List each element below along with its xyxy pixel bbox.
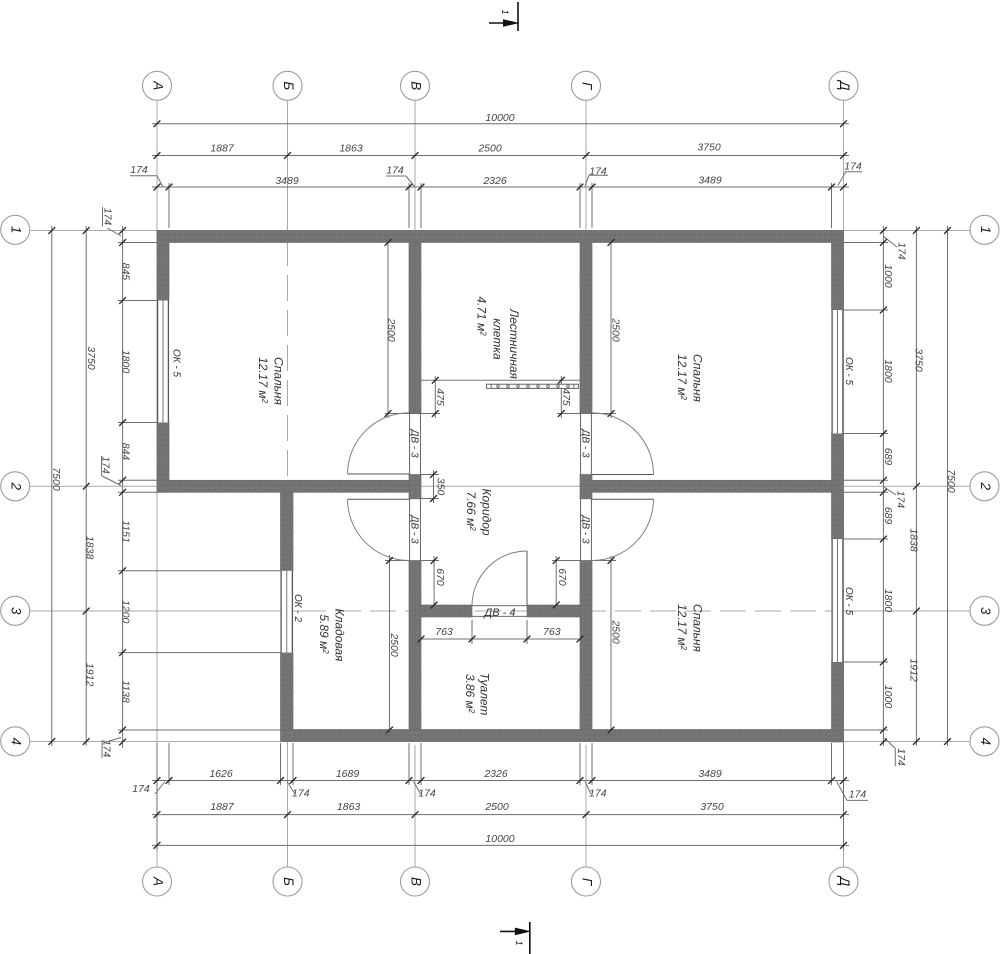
svg-text:Д: Д (837, 79, 852, 91)
svg-text:ОК - 5: ОК - 5 (170, 349, 181, 378)
svg-text:2500: 2500 (609, 619, 621, 644)
svg-text:2500: 2500 (477, 143, 502, 155)
svg-text:350: 350 (434, 478, 446, 496)
svg-text:Спальня: Спальня (691, 354, 705, 402)
svg-text:845: 845 (119, 263, 131, 281)
svg-text:1689: 1689 (336, 768, 360, 780)
svg-text:Д: Д (837, 875, 852, 887)
svg-text:ДВ - 3: ДВ - 3 (408, 428, 419, 458)
svg-text:12.17 м2: 12.17 м2 (675, 604, 689, 651)
svg-text:2: 2 (978, 482, 993, 491)
svg-text:174: 174 (99, 456, 111, 474)
svg-text:7500: 7500 (945, 469, 957, 493)
svg-text:1138: 1138 (119, 680, 131, 703)
svg-text:2500: 2500 (484, 801, 509, 813)
svg-text:ОК - 2: ОК - 2 (292, 594, 303, 623)
svg-text:1200: 1200 (119, 600, 131, 624)
svg-text:2: 2 (9, 482, 24, 491)
svg-text:670: 670 (434, 568, 446, 586)
svg-text:А: А (151, 876, 166, 886)
svg-text:7500: 7500 (50, 467, 62, 491)
svg-text:3489: 3489 (275, 175, 299, 187)
svg-text:174: 174 (895, 748, 907, 766)
svg-text:1000: 1000 (882, 264, 894, 288)
svg-text:Лестничная: Лестничная (507, 308, 521, 380)
svg-text:1: 1 (514, 940, 524, 945)
svg-text:174: 174 (895, 242, 907, 260)
svg-text:Спальня: Спальня (272, 357, 286, 405)
svg-text:689: 689 (882, 448, 894, 466)
svg-text:174: 174 (844, 161, 862, 173)
svg-text:12.17 м2: 12.17 м2 (675, 354, 689, 401)
svg-text:844: 844 (119, 443, 131, 461)
svg-text:ДВ - 4: ДВ - 4 (483, 607, 516, 619)
svg-text:174: 174 (130, 164, 148, 176)
svg-text:475: 475 (434, 388, 446, 406)
svg-text:ДВ - 3: ДВ - 3 (408, 514, 419, 544)
svg-text:1912: 1912 (83, 663, 95, 687)
svg-text:5.89 м2: 5.89 м2 (317, 614, 331, 654)
svg-text:1: 1 (500, 9, 510, 14)
svg-text:10000: 10000 (485, 833, 514, 845)
svg-text:ДВ - 3: ДВ - 3 (579, 514, 590, 544)
svg-text:1800: 1800 (882, 589, 894, 613)
svg-text:ОК - 5: ОК - 5 (843, 357, 854, 386)
svg-text:174: 174 (292, 788, 310, 800)
svg-text:3489: 3489 (698, 175, 722, 187)
svg-text:2500: 2500 (609, 317, 621, 342)
svg-text:В: В (409, 877, 424, 886)
svg-text:174: 174 (849, 789, 867, 801)
svg-text:2326: 2326 (483, 768, 508, 780)
svg-text:Б: Б (281, 877, 296, 886)
svg-text:3750: 3750 (697, 142, 721, 154)
svg-text:1863: 1863 (339, 143, 363, 155)
svg-text:Коридор: Коридор (480, 488, 494, 535)
svg-text:174: 174 (101, 208, 113, 226)
svg-text:1000: 1000 (882, 685, 894, 709)
svg-text:Кладовая: Кладовая (333, 609, 347, 662)
svg-text:1838: 1838 (83, 536, 95, 560)
svg-text:3: 3 (9, 607, 24, 615)
svg-text:2500: 2500 (388, 632, 400, 657)
svg-text:174: 174 (589, 788, 607, 800)
svg-text:174: 174 (894, 491, 906, 509)
svg-text:174: 174 (132, 783, 150, 795)
svg-text:3.86 м2: 3.86 м2 (463, 674, 477, 714)
svg-text:1912: 1912 (907, 658, 919, 682)
svg-text:Б: Б (281, 81, 296, 90)
svg-text:А: А (151, 80, 166, 90)
svg-text:2326: 2326 (482, 175, 507, 187)
svg-text:1800: 1800 (119, 350, 131, 374)
svg-text:1838: 1838 (907, 528, 919, 552)
svg-text:12.17 м2: 12.17 м2 (256, 357, 270, 404)
svg-text:ДВ - 3: ДВ - 3 (579, 428, 590, 458)
svg-text:1887: 1887 (210, 801, 235, 813)
svg-text:7.66 м2: 7.66 м2 (464, 491, 478, 531)
svg-text:174: 174 (589, 166, 607, 178)
svg-text:3750: 3750 (85, 346, 97, 370)
svg-text:4.71 м2: 4.71 м2 (475, 296, 489, 336)
svg-text:1863: 1863 (337, 801, 361, 813)
svg-text:475: 475 (560, 388, 572, 406)
svg-text:174: 174 (100, 740, 112, 758)
svg-text:1626: 1626 (209, 768, 233, 780)
svg-text:1: 1 (978, 226, 993, 234)
svg-text:3: 3 (978, 607, 993, 615)
svg-text:3750: 3750 (700, 801, 724, 813)
svg-text:3750: 3750 (912, 348, 924, 372)
svg-text:763: 763 (435, 626, 453, 638)
svg-text:2500: 2500 (385, 317, 397, 342)
svg-text:3489: 3489 (698, 768, 722, 780)
svg-text:10000: 10000 (485, 112, 514, 124)
svg-text:174: 174 (418, 788, 436, 800)
svg-text:Спальня: Спальня (691, 604, 705, 652)
svg-text:Туалет: Туалет (478, 673, 492, 716)
svg-text:4: 4 (978, 738, 993, 746)
svg-text:ОК - 5: ОК - 5 (843, 587, 854, 616)
svg-text:1151: 1151 (119, 520, 131, 543)
svg-text:174: 174 (386, 165, 404, 177)
svg-text:1887: 1887 (210, 143, 235, 155)
svg-text:763: 763 (543, 626, 561, 638)
svg-text:670: 670 (556, 568, 568, 586)
svg-text:1: 1 (9, 226, 24, 234)
svg-text:1800: 1800 (882, 359, 894, 383)
svg-text:4: 4 (9, 738, 24, 746)
svg-text:В: В (409, 81, 424, 90)
svg-text:клетка: клетка (491, 318, 505, 360)
svg-text:689: 689 (882, 507, 894, 525)
